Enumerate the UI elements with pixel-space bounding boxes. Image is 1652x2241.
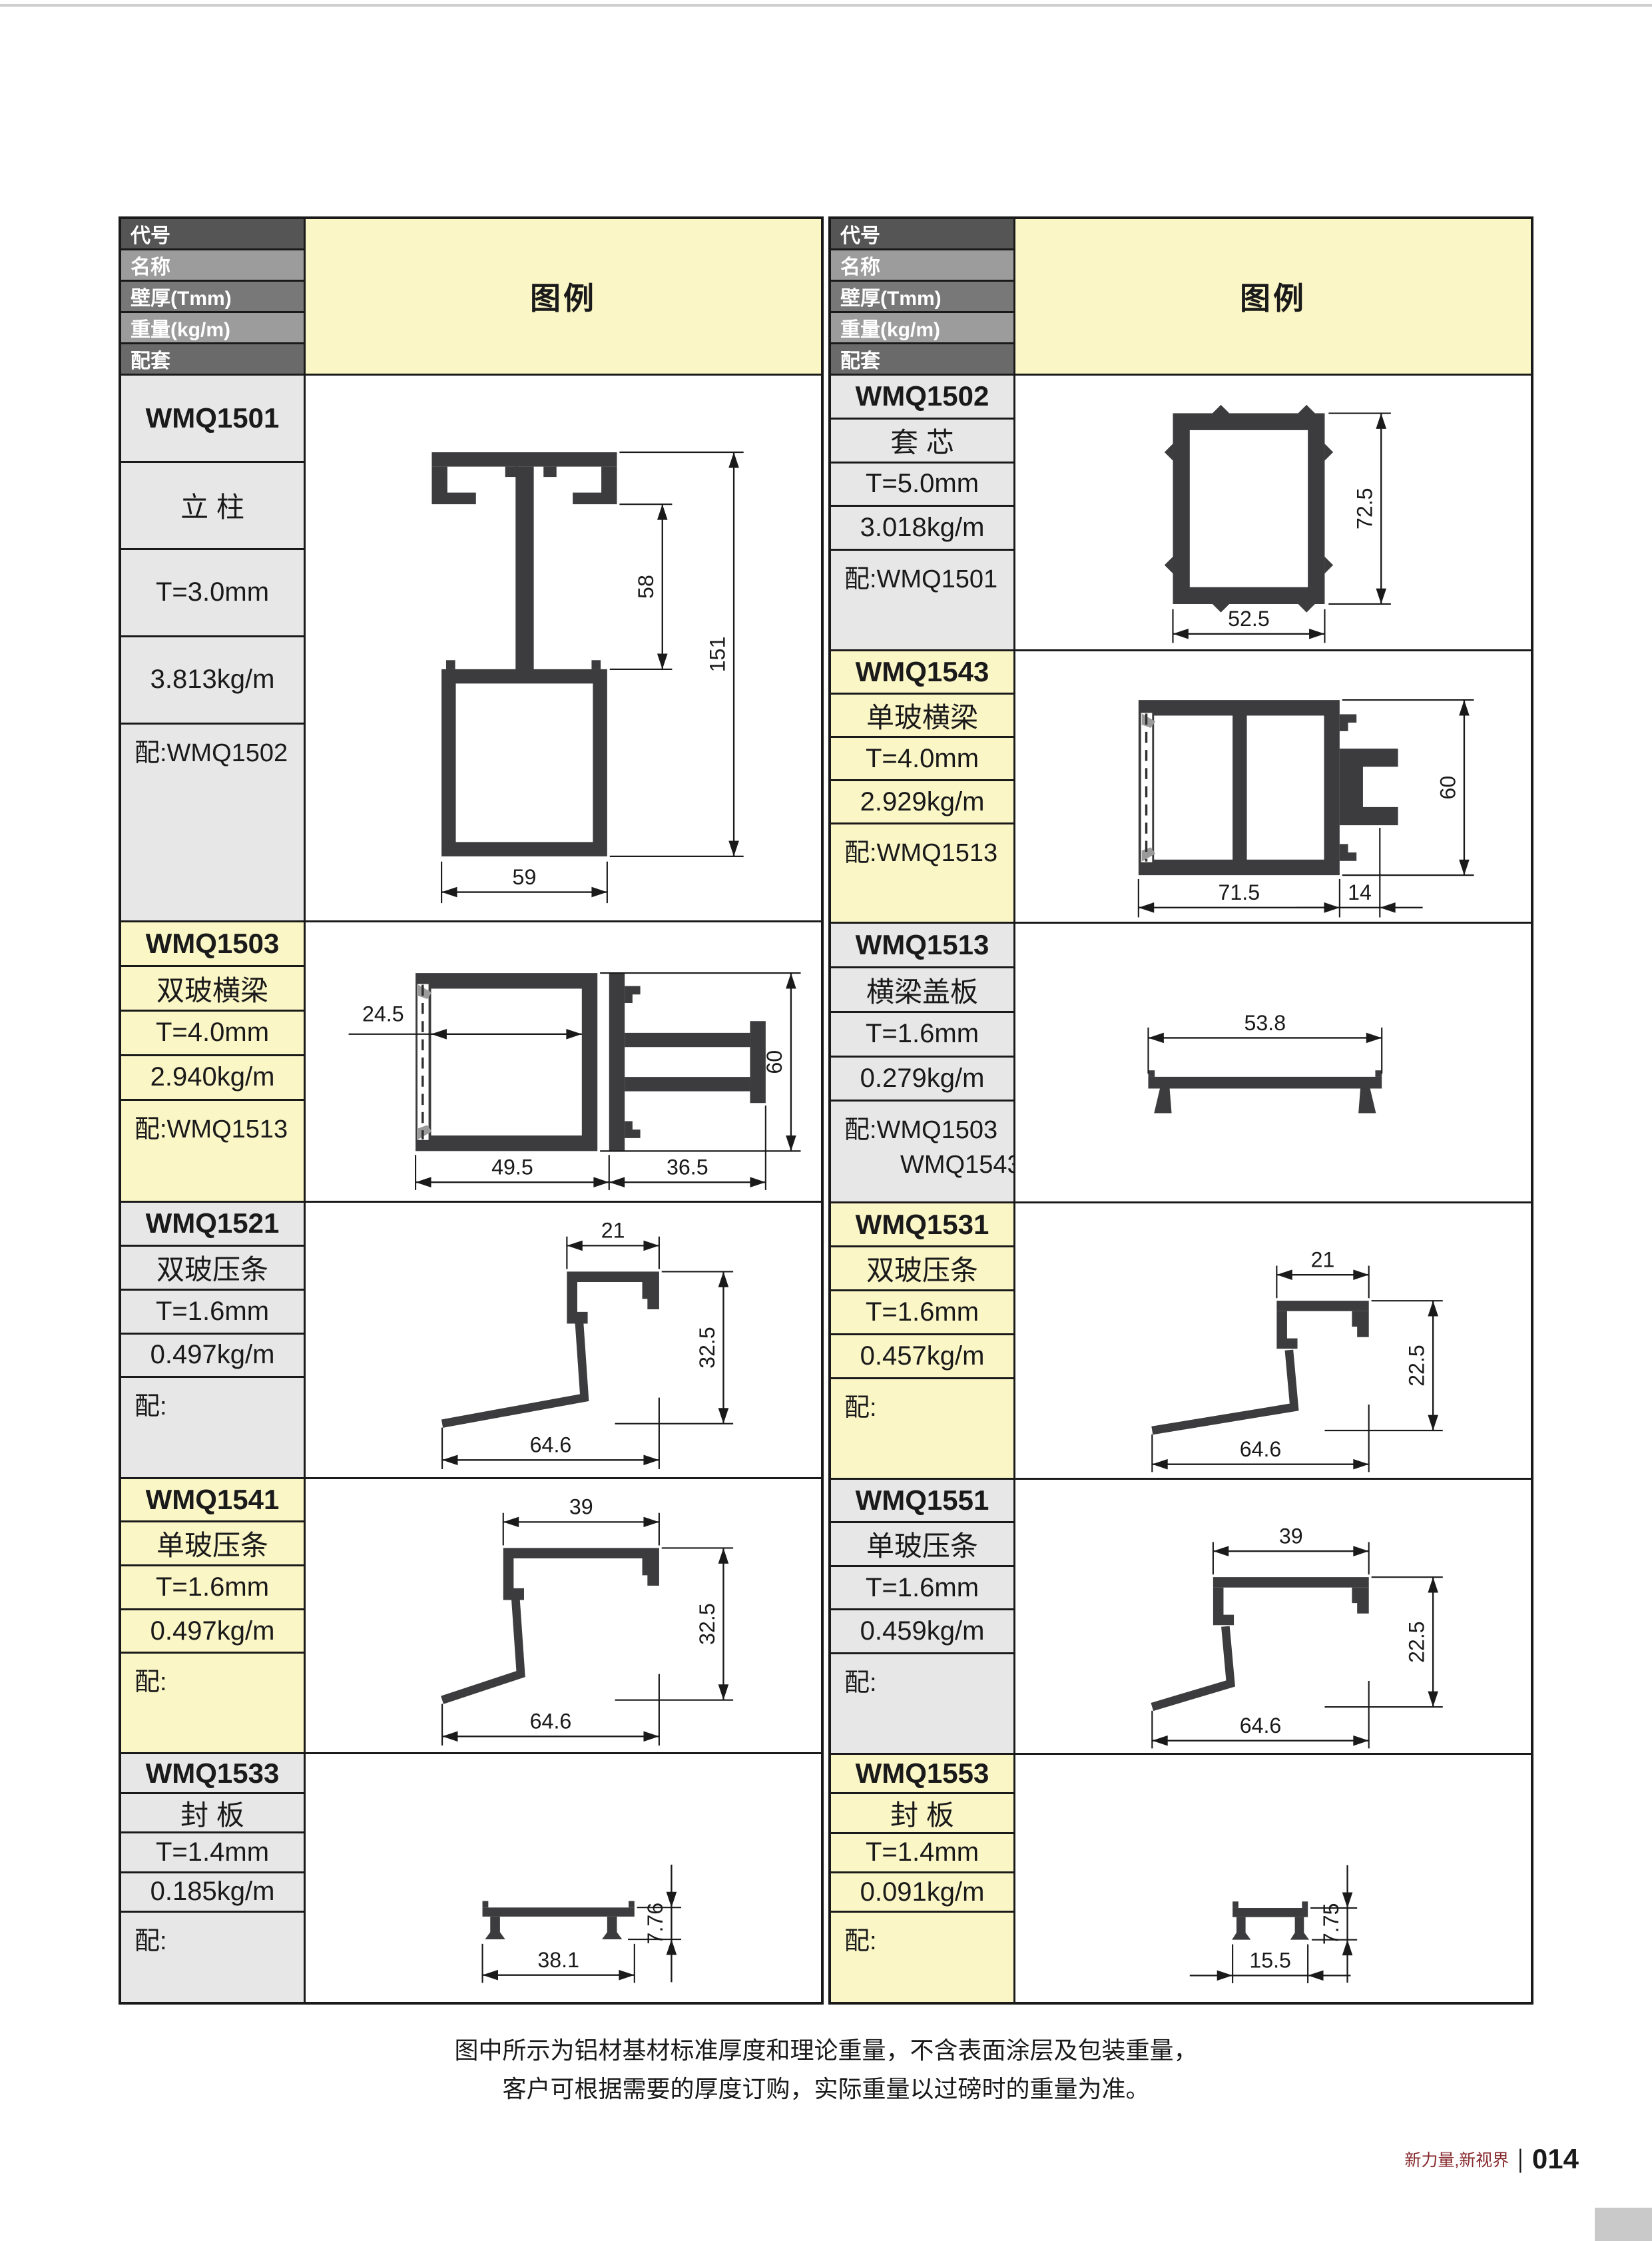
- svg-text:64.6: 64.6: [530, 1433, 572, 1457]
- header-row-weight: 重量(kg/m): [831, 313, 1013, 344]
- profile-drawing: 7.7515.5: [1013, 1755, 1531, 2002]
- profile-match: 配:: [844, 1391, 877, 1425]
- profile-match: 配:: [135, 1666, 167, 1700]
- profile-block-WMQ1503: WMQ1503 双玻横梁 T=4.0mm 2.940kg/m 配:WMQ1513…: [121, 920, 821, 1201]
- profile-name: 双玻横梁: [156, 968, 268, 1009]
- table-header: 代号 名称 壁厚(Tmm) 重量(kg/m) 配套 图例: [831, 219, 1531, 376]
- profile-cross-section-svg: 53.8: [1015, 924, 1531, 1201]
- profile-weight: 2.940kg/m: [150, 1062, 275, 1092]
- svg-text:60: 60: [762, 1050, 786, 1074]
- svg-text:22.5: 22.5: [1405, 1621, 1429, 1663]
- profile-match: 配:: [135, 1390, 167, 1424]
- svg-text:151: 151: [705, 637, 729, 673]
- profile-name: 单玻压条: [866, 1524, 978, 1564]
- profile-drawing: 53.8: [1013, 924, 1531, 1201]
- spec-table-left: 代号 名称 壁厚(Tmm) 重量(kg/m) 配套 图例 WMQ1501 立 柱…: [119, 216, 824, 2005]
- footnote-line: 图中所示为铝材基材标准厚度和理论重量，不含表面涂层及包装重量，: [0, 2031, 1652, 2070]
- svg-text:21: 21: [601, 1219, 625, 1243]
- profile-labels: WMQ1531 双玻压条 T=1.6mm 0.457kg/m 配:: [831, 1203, 1013, 1477]
- profile-block-WMQ1553: WMQ1553 封 板 T=1.4mm 0.091kg/m 配: 7.7515.…: [831, 1753, 1531, 2002]
- header-label: 配套: [840, 344, 880, 374]
- profile-block-WMQ1521: WMQ1521 双玻压条 T=1.6mm 0.497kg/m 配: 2132.5…: [121, 1201, 821, 1477]
- profile-match: 配:WMQ1501: [844, 563, 997, 597]
- profile-name: 横梁盖板: [866, 970, 978, 1010]
- header-row-code: 代号: [831, 219, 1013, 250]
- profile-thickness: T=1.6mm: [866, 1573, 979, 1603]
- profile-cross-section-svg: 2122.564.6: [1015, 1203, 1531, 1477]
- profile-drawing: 5815159: [304, 376, 821, 920]
- footnote: 图中所示为铝材基材标准厚度和理论重量，不含表面涂层及包装重量， 客户可根据需要的…: [0, 2031, 1652, 2109]
- svg-text:49.5: 49.5: [491, 1155, 533, 1179]
- footer-divider: |: [1519, 2145, 1522, 2174]
- profile-code: WMQ1521: [146, 1207, 280, 1239]
- profile-code: WMQ1553: [856, 1758, 989, 1789]
- table-body: WMQ1502 套 芯 T=5.0mm 3.018kg/m 配:WMQ1501 …: [831, 376, 1531, 2002]
- profile-name: 单玻横梁: [866, 695, 978, 736]
- profile-weight: 3.018kg/m: [860, 513, 985, 543]
- profile-match: 配:WMQ1513: [844, 836, 997, 870]
- svg-text:32.5: 32.5: [695, 1327, 719, 1369]
- profile-code: WMQ1533: [146, 1758, 280, 1789]
- profile-code: WMQ1501: [146, 402, 280, 434]
- header-label: 重量(kg/m): [131, 313, 230, 342]
- profile-weight: 2.929kg/m: [860, 787, 985, 817]
- header-label: 名称: [840, 250, 880, 280]
- profile-code: WMQ1502: [856, 380, 989, 412]
- profile-block-WMQ1551: WMQ1551 单玻压条 T=1.6mm 0.459kg/m 配: 3922.5…: [831, 1478, 1531, 1753]
- profile-labels: WMQ1543 单玻横梁 T=4.0mm 2.929kg/m 配:WMQ1513: [831, 651, 1013, 922]
- catalog-page: 代号 名称 壁厚(Tmm) 重量(kg/m) 配套 图例 WMQ1501 立 柱…: [0, 0, 1652, 2241]
- profile-drawing: 7.7638.1: [304, 1754, 821, 2002]
- profile-labels: WMQ1501 立 柱 T=3.0mm 3.813kg/m 配:WMQ1502: [121, 376, 304, 920]
- profile-block-WMQ1541: WMQ1541 单玻压条 T=1.6mm 0.497kg/m 配: 3932.5…: [121, 1477, 821, 1753]
- header-label: 重量(kg/m): [840, 313, 940, 342]
- profile-drawing: 3932.564.6: [304, 1479, 821, 1753]
- profile-code: WMQ1503: [146, 928, 280, 960]
- header-label: 壁厚(Tmm): [840, 282, 942, 311]
- profile-drawing: 3922.564.6: [1013, 1480, 1531, 1753]
- profile-block-WMQ1533: WMQ1533 封 板 T=1.4mm 0.185kg/m 配: 7.7638.…: [121, 1752, 821, 2002]
- profile-match-extra: WMQ1543: [844, 1148, 1013, 1182]
- profile-thickness: T=5.0mm: [866, 469, 979, 499]
- profile-match: 配:WMQ1513: [135, 1113, 288, 1147]
- header-label-column: 代号 名称 壁厚(Tmm) 重量(kg/m) 配套: [121, 219, 304, 374]
- top-divider-rule: [0, 4, 1652, 7]
- profile-block-WMQ1501: WMQ1501 立 柱 T=3.0mm 3.813kg/m 配:WMQ1502 …: [121, 376, 821, 920]
- profile-thickness: T=3.0mm: [156, 577, 269, 607]
- footnote-line: 客户可根据需要的厚度订购，实际重量以过磅时的重量为准。: [0, 2070, 1652, 2108]
- legend-label: 图例: [1240, 274, 1306, 318]
- svg-text:39: 39: [1279, 1524, 1303, 1548]
- header-label: 配套: [131, 344, 170, 374]
- svg-text:39: 39: [569, 1494, 593, 1518]
- profile-thickness: T=4.0mm: [866, 744, 979, 774]
- profile-cross-section-svg: 24.56049.536.5: [306, 922, 821, 1201]
- profile-labels: WMQ1513 横梁盖板 T=1.6mm 0.279kg/m 配:WMQ1503…: [831, 924, 1013, 1201]
- svg-text:60: 60: [1436, 776, 1460, 800]
- svg-text:52.5: 52.5: [1228, 607, 1270, 631]
- page-corner-mark: [1595, 2208, 1652, 2241]
- profile-thickness: T=1.4mm: [156, 1837, 269, 1867]
- profile-block-WMQ1531: WMQ1531 双玻压条 T=1.6mm 0.457kg/m 配: 2122.5…: [831, 1201, 1531, 1477]
- profile-thickness: T=1.6mm: [866, 1019, 979, 1049]
- profile-block-WMQ1543: WMQ1543 单玻横梁 T=4.0mm 2.929kg/m 配:WMQ1513…: [831, 649, 1531, 922]
- profile-cross-section-svg: 6071.514: [1015, 651, 1531, 922]
- legend-header-cell: 图例: [304, 219, 821, 374]
- svg-text:59: 59: [513, 865, 537, 889]
- profile-weight: 0.457kg/m: [860, 1341, 985, 1371]
- profile-code: WMQ1531: [856, 1209, 989, 1241]
- profile-cross-section-svg: 7.7515.5: [1015, 1755, 1531, 2002]
- profile-name: 单玻压条: [156, 1523, 268, 1564]
- table-header: 代号 名称 壁厚(Tmm) 重量(kg/m) 配套 图例: [121, 219, 821, 376]
- profile-name: 立 柱: [180, 485, 244, 525]
- header-row-thickness: 壁厚(Tmm): [121, 282, 304, 313]
- svg-text:38.1: 38.1: [537, 1948, 579, 1972]
- header-label: 代号: [840, 219, 880, 248]
- header-row-name: 名称: [831, 250, 1013, 282]
- profile-labels: WMQ1553 封 板 T=1.4mm 0.091kg/m 配:: [831, 1755, 1013, 2002]
- spec-table-right: 代号 名称 壁厚(Tmm) 重量(kg/m) 配套 图例 WMQ1502 套 芯…: [828, 216, 1533, 2005]
- profile-match: 配:: [844, 1666, 877, 1700]
- svg-text:21: 21: [1311, 1248, 1335, 1272]
- legend-header-cell: 图例: [1013, 219, 1531, 374]
- profile-cross-section-svg: 3922.564.6: [1015, 1480, 1531, 1753]
- profile-drawing: 2122.564.6: [1013, 1203, 1531, 1477]
- svg-text:22.5: 22.5: [1405, 1345, 1429, 1387]
- header-row-code: 代号: [121, 219, 304, 250]
- profile-weight: 0.279kg/m: [860, 1064, 985, 1094]
- svg-text:7.75: 7.75: [1319, 1903, 1343, 1945]
- profile-labels: WMQ1533 封 板 T=1.4mm 0.185kg/m 配:: [121, 1754, 304, 2002]
- profile-weight: 0.497kg/m: [150, 1616, 275, 1646]
- profile-labels: WMQ1541 单玻压条 T=1.6mm 0.497kg/m 配:: [121, 1479, 304, 1753]
- profile-cross-section-svg: 2132.564.6: [306, 1203, 821, 1477]
- profile-drawing: 6071.514: [1013, 651, 1531, 922]
- svg-text:36.5: 36.5: [667, 1155, 708, 1179]
- profile-weight: 0.185kg/m: [150, 1877, 275, 1907]
- svg-text:64.6: 64.6: [530, 1709, 572, 1733]
- profile-drawing: 72.552.5: [1013, 376, 1531, 649]
- profile-thickness: T=1.6mm: [866, 1297, 979, 1327]
- header-row-match: 配套: [121, 344, 304, 374]
- profile-name: 双玻压条: [156, 1247, 268, 1288]
- profile-drawing: 2132.564.6: [304, 1203, 821, 1477]
- profile-match: 配:WMQ1502: [135, 737, 288, 771]
- profile-match: 配:WMQ1503: [844, 1114, 997, 1147]
- svg-text:58: 58: [634, 575, 658, 599]
- header-row-match: 配套: [831, 344, 1013, 374]
- svg-text:64.6: 64.6: [1240, 1437, 1282, 1461]
- profile-code: WMQ1551: [856, 1484, 989, 1516]
- profile-block-WMQ1502: WMQ1502 套 芯 T=5.0mm 3.018kg/m 配:WMQ1501 …: [831, 376, 1531, 649]
- profile-weight: 0.497kg/m: [150, 1340, 275, 1370]
- header-row-name: 名称: [121, 250, 304, 282]
- profile-labels: WMQ1551 单玻压条 T=1.6mm 0.459kg/m 配:: [831, 1480, 1013, 1753]
- profile-thickness: T=4.0mm: [156, 1018, 269, 1048]
- svg-text:14: 14: [1348, 880, 1372, 904]
- profile-cross-section-svg: 72.552.5: [1015, 376, 1531, 649]
- profile-code: WMQ1543: [856, 656, 989, 688]
- profile-weight: 0.459kg/m: [860, 1616, 985, 1646]
- profile-thickness: T=1.6mm: [156, 1297, 269, 1327]
- svg-text:7.76: 7.76: [643, 1903, 667, 1945]
- profile-weight: 3.813kg/m: [150, 665, 275, 695]
- svg-text:15.5: 15.5: [1249, 1948, 1291, 1972]
- profile-code: WMQ1541: [146, 1484, 280, 1516]
- svg-text:71.5: 71.5: [1219, 880, 1260, 904]
- profile-name: 双玻压条: [866, 1248, 978, 1289]
- profile-thickness: T=1.6mm: [156, 1572, 269, 1602]
- profile-thickness: T=1.4mm: [866, 1837, 979, 1867]
- profile-cross-section-svg: 5815159: [306, 376, 821, 920]
- profile-cross-section-svg: 3932.564.6: [306, 1479, 821, 1753]
- header-label-column: 代号 名称 壁厚(Tmm) 重量(kg/m) 配套: [831, 219, 1013, 374]
- profile-name: 封 板: [180, 1794, 244, 1833]
- svg-text:32.5: 32.5: [695, 1603, 719, 1645]
- profile-labels: WMQ1521 双玻压条 T=1.6mm 0.497kg/m 配:: [121, 1203, 304, 1477]
- page-number: 014: [1532, 2143, 1579, 2175]
- header-row-thickness: 壁厚(Tmm): [831, 282, 1013, 313]
- svg-text:64.6: 64.6: [1240, 1714, 1282, 1738]
- profile-match: 配:: [135, 1925, 167, 1959]
- profile-weight: 0.091kg/m: [860, 1877, 985, 1907]
- table-body: WMQ1501 立 柱 T=3.0mm 3.813kg/m 配:WMQ1502 …: [121, 376, 821, 2002]
- profile-code: WMQ1513: [856, 929, 989, 961]
- svg-text:53.8: 53.8: [1244, 1011, 1286, 1035]
- profile-drawing: 24.56049.536.5: [304, 922, 821, 1201]
- svg-text:24.5: 24.5: [362, 1002, 404, 1026]
- profile-labels: WMQ1503 双玻横梁 T=4.0mm 2.940kg/m 配:WMQ1513: [121, 922, 304, 1201]
- header-row-weight: 重量(kg/m): [121, 313, 304, 344]
- profile-match: 配:: [844, 1925, 877, 1959]
- profile-name: 封 板: [890, 1794, 954, 1833]
- footer: 新力量,新视界 | 014: [1404, 2143, 1579, 2175]
- header-label: 名称: [131, 250, 170, 280]
- legend-label: 图例: [530, 274, 597, 318]
- header-label: 代号: [131, 219, 170, 248]
- profile-name: 套 芯: [890, 420, 954, 461]
- profile-block-WMQ1513: WMQ1513 横梁盖板 T=1.6mm 0.279kg/m 配:WMQ1503…: [831, 922, 1531, 1201]
- header-label: 壁厚(Tmm): [131, 282, 232, 311]
- profile-labels: WMQ1502 套 芯 T=5.0mm 3.018kg/m 配:WMQ1501: [831, 376, 1013, 649]
- svg-text:72.5: 72.5: [1353, 487, 1377, 529]
- profile-cross-section-svg: 7.7638.1: [306, 1754, 821, 2002]
- footer-brand: 新力量,新视界: [1404, 2147, 1509, 2171]
